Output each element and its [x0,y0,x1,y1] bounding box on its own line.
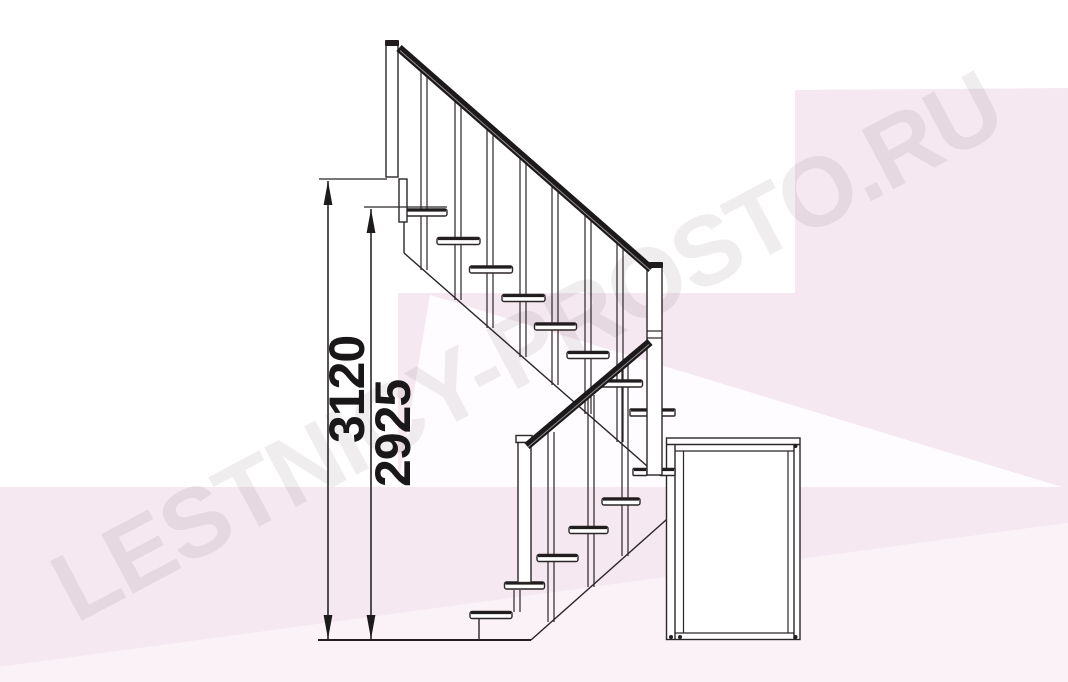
screw-dot [794,635,798,639]
tread [633,469,647,476]
tread [502,295,545,302]
upper-handrail [399,48,651,269]
arrow-up [367,209,376,233]
central-post [647,266,662,475]
tread [569,527,608,534]
tread [403,209,447,216]
drawing-canvas: LESTNICY-PROSTO.RU [0,0,1068,682]
staircase-drawing: LESTNICY-PROSTO.RU [0,0,1068,682]
tread [602,498,640,505]
top-newel-post [386,44,398,177]
support-box [667,438,801,640]
tread [470,266,513,273]
dimension-label-2925: 2925 [365,380,421,487]
support-box-frame [667,438,801,640]
arrow-up [324,181,333,205]
tread [535,323,577,330]
upper-handrail-stripe [400,51,650,271]
upper-floor-stub [399,179,407,222]
tread [537,555,578,562]
screw-dot [794,444,798,448]
top-newel-cap [385,40,399,46]
screw-dot [669,635,673,639]
screw-dot [678,635,682,639]
lower-newel-post [518,443,531,583]
tread [630,409,648,416]
tread [470,612,512,619]
tread [567,352,609,359]
tread [437,238,480,245]
